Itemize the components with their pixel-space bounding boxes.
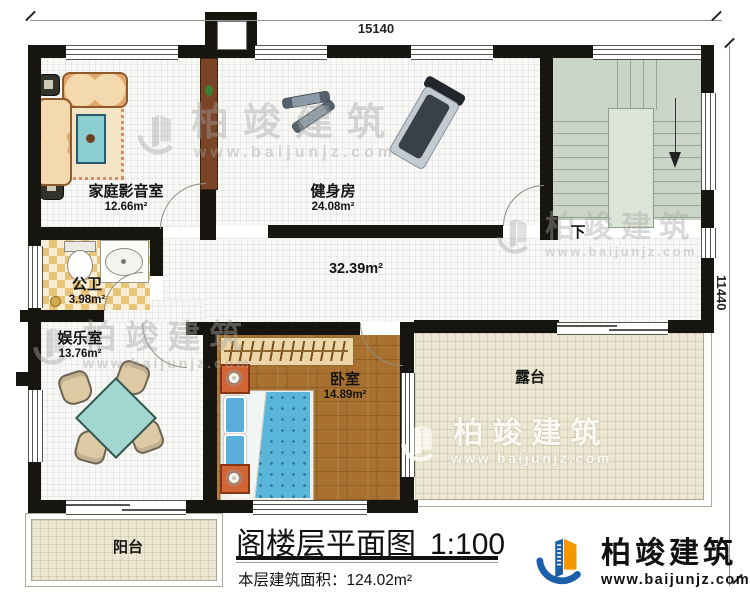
sink-drain [121,259,126,264]
wall-segment [28,227,163,240]
room-name: 娱乐室 [28,330,132,348]
room-label-gym: 健身房 24.08m² [273,183,393,215]
brand-website: www.baijunjz.com [601,572,750,588]
window [255,45,327,60]
room-area: 14.89m² [295,389,395,403]
wall-pier [16,372,28,386]
room-name: 公卫 [47,276,127,294]
room-label-bedroom: 卧室 14.89m² [295,371,395,403]
floor-area-line: 本层建筑面积：124.02m² [238,568,412,590]
dimension-height: 11440 [714,272,729,313]
room-name: 露台 [490,369,570,387]
staircase [553,58,701,220]
stairs-direction-label: 下 [564,224,592,242]
nightstand [220,364,250,394]
wardrobe [220,337,354,366]
wardrobe-rail [224,350,348,352]
room-area: 24.08m² [273,201,393,215]
stair-direction-line [675,98,676,154]
floor-area-value: 124.02m² [347,572,412,589]
stair-down-arrow-icon [669,152,681,174]
window [28,246,43,308]
dimension-width: 15140 [348,21,404,36]
room-area: 12.66m² [66,201,186,215]
speaker-cone [44,80,53,89]
title-underline-thin [236,562,498,563]
corridor-floor [163,238,701,322]
title-underline [236,556,498,560]
terrace-rail-bottom [415,506,712,507]
wall-segment [20,310,104,322]
table-decor [86,134,95,143]
window [401,373,415,477]
sliding-door [557,322,668,335]
room-label-balcony: 阳台 [83,539,173,557]
room-area: 32.39m² [316,261,396,278]
room-name: 卧室 [295,371,395,389]
brand-name: 柏竣建筑 [601,528,750,572]
nightstand [220,464,250,494]
stair-landing [608,108,654,228]
sliding-door [66,500,186,515]
stairs-down-text: 下 [564,224,592,242]
window [701,228,716,258]
room-name: 家庭影音室 [66,183,186,201]
room-name: 阳台 [83,539,173,557]
stair-top-treads [605,58,665,110]
room-area: 3.98m² [47,294,127,308]
room-label-entertainment: 娱乐室 13.76m² [28,330,132,362]
plant-icon [205,85,213,96]
lamp-icon [226,370,242,386]
window [253,500,367,515]
sofa-top [62,72,128,108]
window [66,45,178,60]
speaker-icon [38,74,60,96]
door-panel [557,325,617,327]
window [593,45,701,60]
wall-segment [217,322,360,335]
wall-segment [203,322,217,513]
terrace-rail-right [711,333,712,507]
sofa-left [36,98,72,186]
terrace [415,333,712,507]
room-label-terrace: 露台 [490,369,570,387]
door-panel [609,329,668,331]
floor-plan-canvas: 柏竣建筑 www.baijunjz.com 柏竣建筑 www.baijunjz.… [0,0,750,601]
chimney-flue [217,21,247,50]
wall-segment [668,320,714,333]
brand-logo: 柏竣建筑 www.baijunjz.com [533,528,750,588]
window [411,45,493,60]
brand-logo-icon [533,530,591,586]
wall-segment [268,225,503,238]
window [28,390,43,462]
dimension-line-right [729,46,730,586]
corridor-area-label: 32.39m² [316,261,396,278]
window [701,93,716,190]
lamp-icon [226,470,242,486]
wall-segment [414,320,559,333]
room-label-bathroom: 公卫 3.98m² [47,276,127,308]
door-panel [66,504,130,506]
pillow [224,434,246,468]
room-name: 健身房 [273,183,393,201]
pocket-door [200,58,218,190]
terrace-floor [415,333,704,500]
door-panel [122,509,186,511]
pillow [224,396,246,434]
floor-area-label: 本层建筑面积： [238,572,347,589]
coffee-table [76,114,106,164]
wall-segment [150,240,163,276]
room-area: 13.76m² [28,348,132,362]
room-label-home-theater: 家庭影音室 12.66m² [66,183,186,215]
